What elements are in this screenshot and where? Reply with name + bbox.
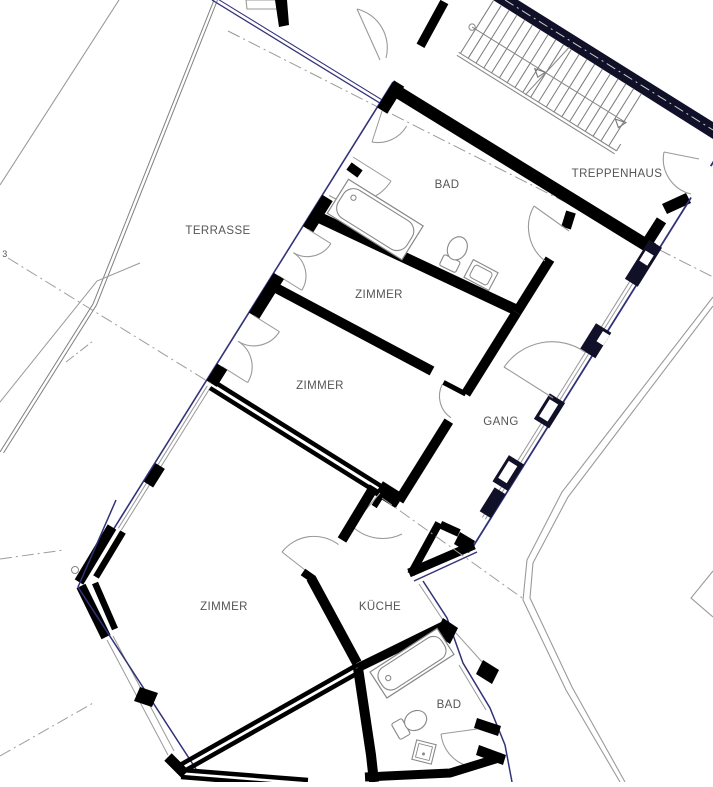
svg-text:TREPPENHAUS: TREPPENHAUS xyxy=(572,168,663,180)
svg-text:ZIMMER: ZIMMER xyxy=(355,289,403,301)
svg-text:KÜCHE: KÜCHE xyxy=(359,601,401,613)
svg-text:ZIMMER: ZIMMER xyxy=(296,380,344,392)
svg-text:3: 3 xyxy=(2,249,7,259)
svg-text:BAD: BAD xyxy=(435,179,460,191)
svg-text:ZIMMER: ZIMMER xyxy=(200,601,248,613)
svg-text:GANG: GANG xyxy=(483,416,518,428)
svg-text:BAD: BAD xyxy=(437,699,462,711)
svg-text:TERRASSE: TERRASSE xyxy=(185,225,250,237)
